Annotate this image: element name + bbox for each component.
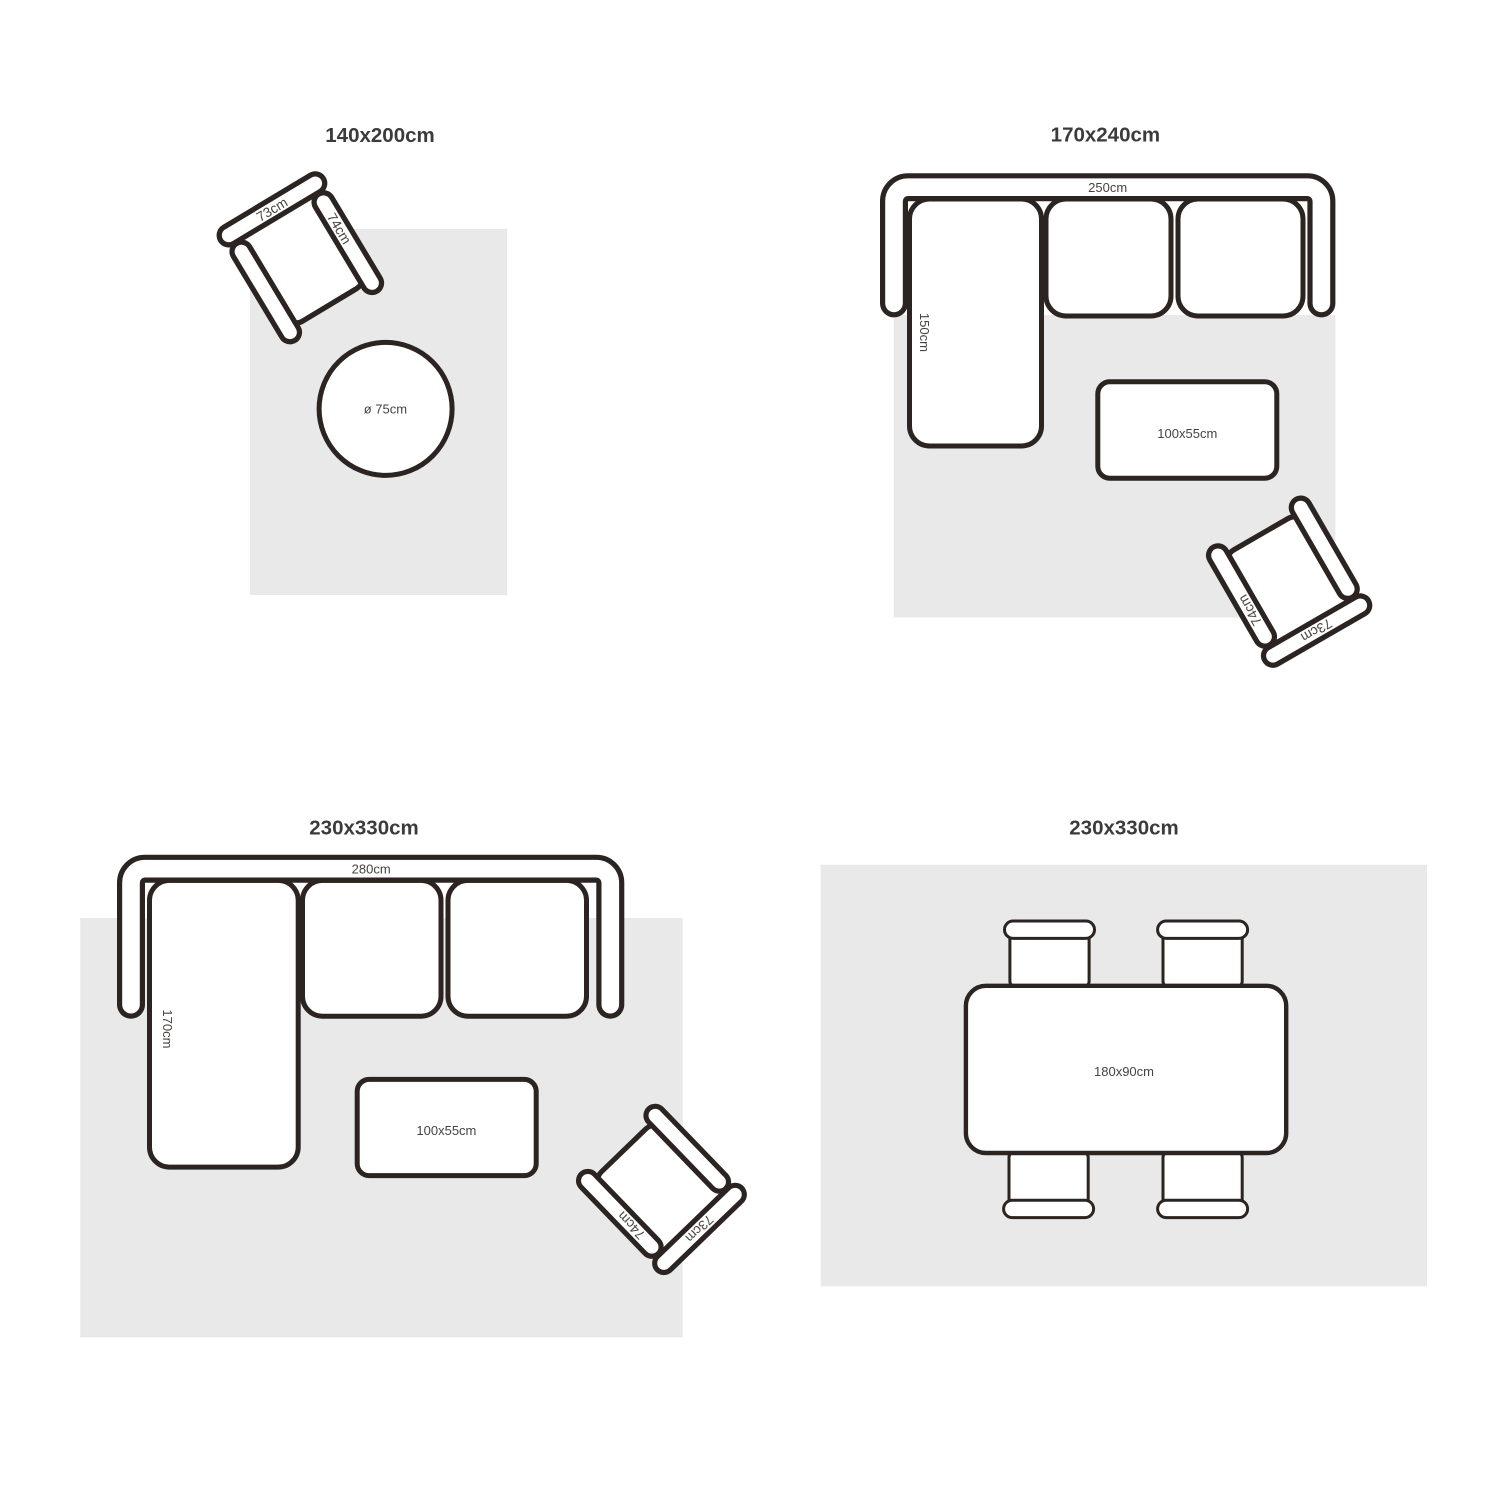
svg-text:170cm: 170cm [160,1009,175,1048]
svg-text:100x55cm: 100x55cm [416,1123,476,1138]
svg-text:140x200cm: 140x200cm [325,124,434,147]
svg-text:280cm: 280cm [352,861,391,876]
svg-text:230x330cm: 230x330cm [309,817,418,840]
svg-text:100x55cm: 100x55cm [1157,426,1217,441]
svg-text:170x240cm: 170x240cm [1051,124,1160,147]
svg-text:180x90cm: 180x90cm [1094,1064,1154,1079]
svg-text:ø 75cm: ø 75cm [364,402,407,417]
svg-text:230x330cm: 230x330cm [1069,817,1178,840]
svg-text:150cm: 150cm [917,313,932,352]
svg-text:250cm: 250cm [1088,180,1127,195]
